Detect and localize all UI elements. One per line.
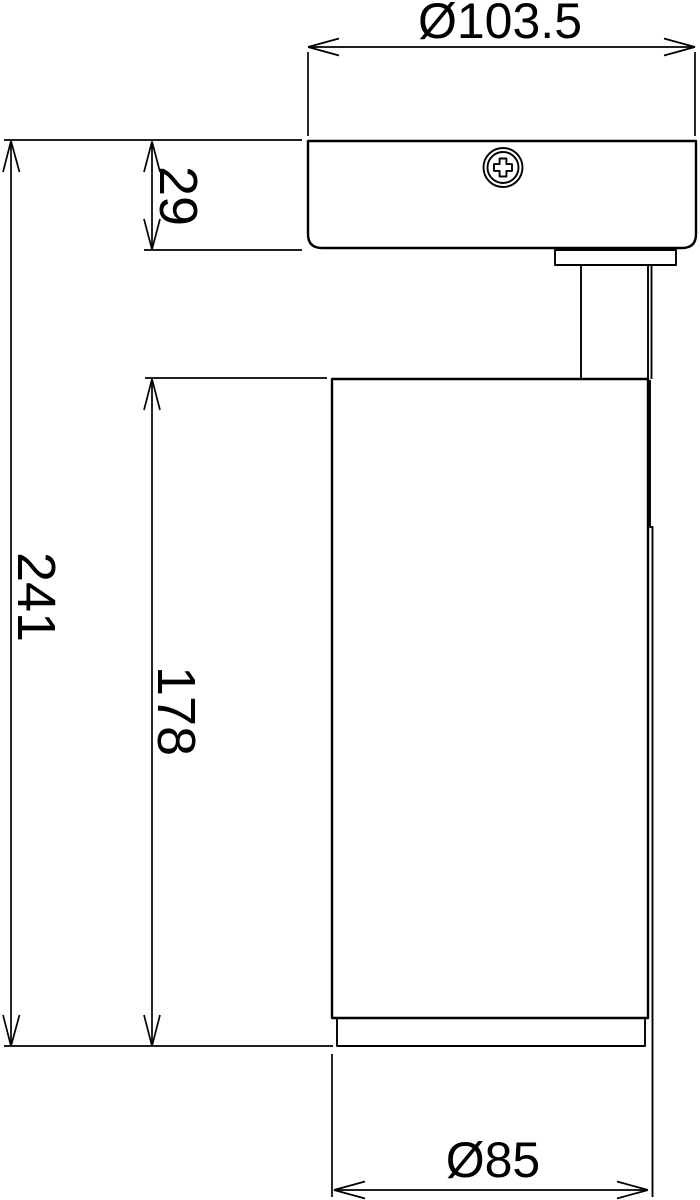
dimension-drawing: Ø103.5 241 29 178	[0, 0, 700, 1200]
label-top-diameter: Ø103.5	[418, 0, 582, 49]
canopy	[308, 141, 696, 248]
dimension-canopy-height: 29	[144, 142, 302, 251]
label-body-height: 178	[146, 666, 206, 756]
lens-ring	[337, 1018, 645, 1046]
stem	[581, 265, 652, 379]
screw-outer-circle	[484, 148, 523, 187]
label-bottom-diameter: Ø85	[446, 1132, 541, 1188]
dimension-bottom-diameter: Ø85	[332, 1054, 648, 1199]
dimension-top-diameter: Ø103.5	[308, 0, 695, 136]
luminaire-outline	[308, 141, 696, 1197]
label-canopy-height: 29	[148, 166, 208, 226]
screw-inner-circle	[488, 152, 519, 183]
screw-head-icon	[484, 148, 523, 187]
label-overall-height: 241	[6, 552, 66, 642]
pivot-arm-line	[650, 380, 653, 1197]
dimension-drawing-page: Ø103.5 241 29 178	[0, 0, 700, 1200]
screw-cross-slot	[494, 159, 512, 177]
mounting-plate	[555, 250, 676, 265]
dimension-body-height: 178	[144, 378, 327, 1046]
lamp-body	[332, 379, 648, 1018]
